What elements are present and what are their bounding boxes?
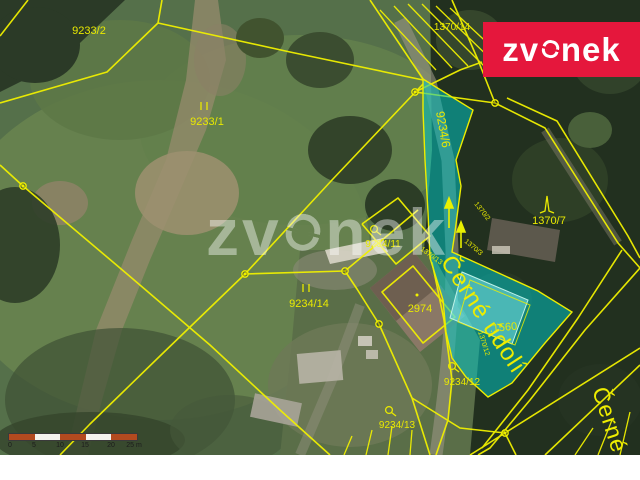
- zvonek-logo: zv nek: [483, 22, 640, 77]
- parcel-label: 2974: [408, 303, 432, 315]
- map-scalebar: 0 5 10 15 20 25 m: [8, 433, 140, 453]
- building-point: [416, 294, 419, 297]
- scalebar-tick: 20: [107, 442, 115, 449]
- zvonek-o-icon: [539, 38, 561, 60]
- parcel-label: 9234/14: [289, 298, 329, 310]
- parcel-label: 1370/14: [434, 22, 471, 33]
- cadastral-map-screenshot: 9233/2 9233/1 1370/14 9234/6 1370/7 9234…: [0, 0, 640, 480]
- logo-text-left: zv: [502, 31, 539, 69]
- scalebar-bar: [8, 433, 138, 441]
- scalebar-tick: 5: [32, 442, 36, 449]
- bottom-white-margin: [0, 455, 640, 480]
- logo-text-right: nek: [561, 31, 621, 69]
- parcel-label: 9233/1: [190, 116, 224, 128]
- parcel-label: 1370/7: [532, 215, 566, 227]
- parcel-label: 9234/13: [379, 420, 416, 431]
- parcel-label: 9234/12: [444, 377, 481, 388]
- parcel-label: 9233/2: [72, 25, 106, 37]
- parcel-label: 9234/11: [365, 239, 401, 250]
- scalebar-tick: 0: [8, 442, 12, 449]
- scalebar-tick: 25 m: [126, 442, 142, 449]
- scalebar-labels: 0 5 10 15 20 25 m: [8, 442, 140, 451]
- scalebar-tick: 15: [81, 442, 89, 449]
- scalebar-tick: 10: [56, 442, 64, 449]
